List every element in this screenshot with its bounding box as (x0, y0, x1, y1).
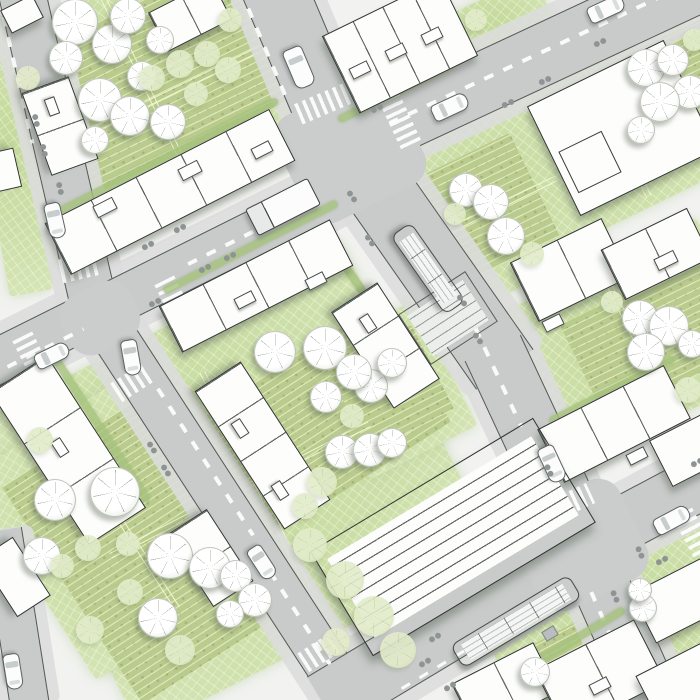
tree (216, 600, 244, 628)
tree (50, 554, 74, 578)
tree (627, 333, 665, 371)
tree (147, 533, 193, 579)
tree (254, 331, 296, 373)
tree (218, 8, 242, 32)
tree (138, 598, 178, 638)
tree (27, 427, 53, 453)
tree (473, 184, 509, 220)
tree (465, 9, 487, 31)
tree (340, 404, 364, 428)
tree (326, 561, 364, 599)
tree (292, 493, 318, 519)
tree (215, 57, 241, 83)
tree (75, 535, 101, 561)
tree (354, 596, 394, 636)
tree (380, 632, 416, 668)
tree (34, 479, 76, 521)
tree (166, 50, 194, 78)
tree (76, 616, 104, 644)
tree (675, 377, 700, 403)
tree (487, 217, 525, 255)
tree (444, 203, 466, 225)
tree (52, 0, 98, 45)
tree (117, 579, 143, 605)
tree (678, 330, 700, 358)
tree (322, 628, 350, 656)
masterplan-map (0, 0, 700, 700)
tree (184, 82, 208, 106)
tree (628, 578, 652, 602)
tree (150, 104, 186, 140)
tree (601, 291, 623, 313)
tree (627, 116, 655, 144)
tree (116, 532, 140, 556)
tree (520, 242, 544, 266)
tree (49, 41, 83, 75)
tree (683, 29, 700, 51)
tree (139, 65, 165, 91)
tree (377, 428, 407, 458)
tree (377, 348, 407, 378)
tree (16, 66, 40, 90)
tree (657, 44, 689, 76)
tree (310, 381, 342, 413)
tree (146, 26, 174, 54)
tree (336, 354, 372, 390)
tree (81, 126, 109, 154)
tree (307, 467, 337, 497)
tree (165, 635, 195, 665)
tree (110, 96, 150, 136)
tree (520, 657, 550, 687)
tree (90, 467, 140, 517)
tree (293, 528, 327, 562)
